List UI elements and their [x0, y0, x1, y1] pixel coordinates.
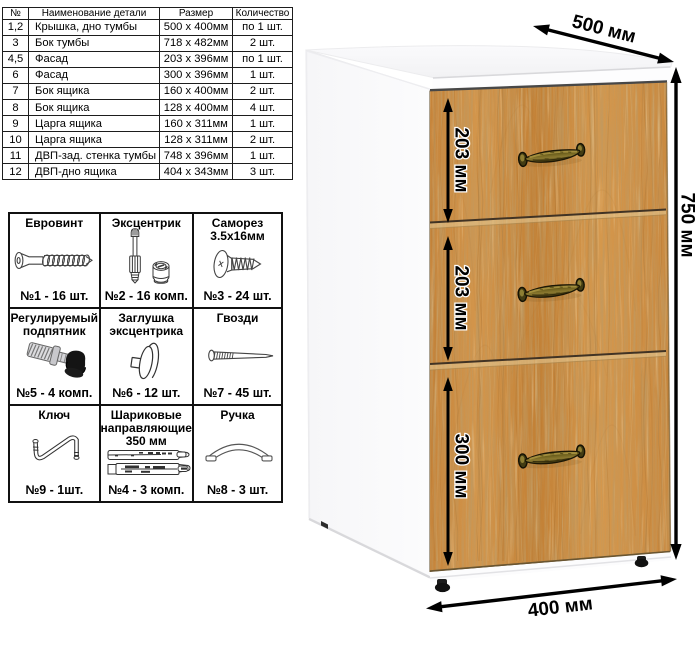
svg-text:400 мм: 400 мм	[527, 593, 594, 621]
svg-text:203 мм: 203 мм	[451, 127, 472, 192]
svg-text:750 мм: 750 мм	[677, 192, 698, 257]
svg-text:300 мм: 300 мм	[451, 433, 472, 498]
svg-text:500 мм: 500 мм	[570, 11, 638, 47]
svg-text:203 мм: 203 мм	[451, 265, 472, 330]
